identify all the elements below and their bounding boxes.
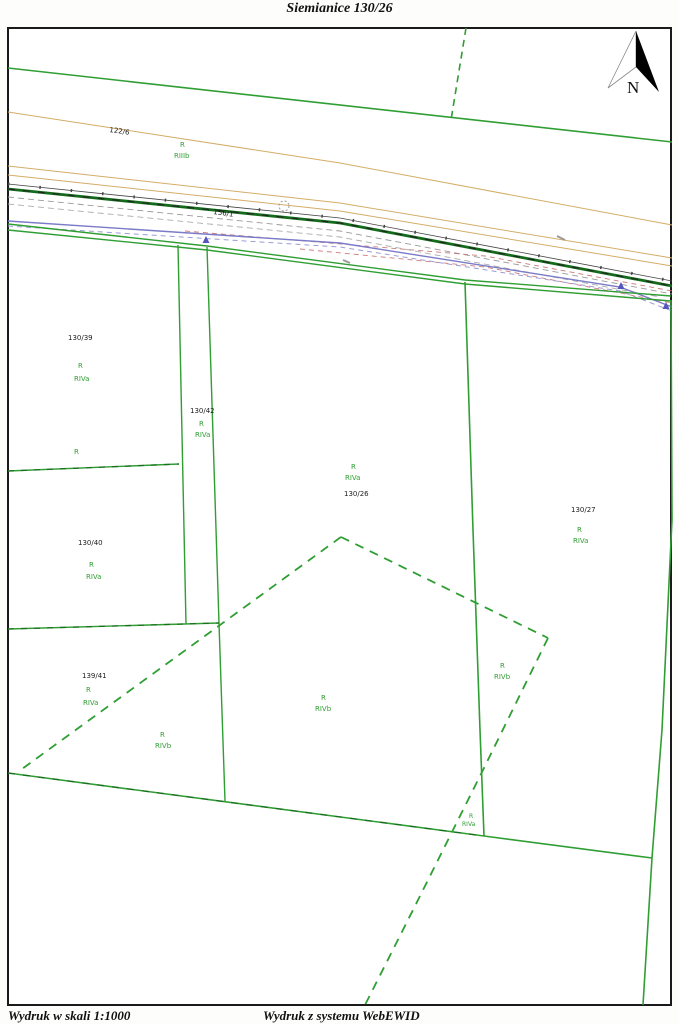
map-label: RIVa	[462, 821, 475, 829]
footer-system-note: Wydruk z systemu WebEWID	[263, 1008, 420, 1024]
map-label: R	[74, 448, 79, 456]
map-label: 122/6	[109, 126, 130, 137]
map-label: R	[577, 526, 582, 534]
map-label: R	[180, 141, 185, 149]
map-label: R	[86, 686, 91, 694]
map-label: RIVa	[86, 573, 101, 581]
north-arrow-letter: N	[627, 78, 639, 97]
map-label: R	[160, 731, 165, 739]
map-label: RIVa	[195, 431, 210, 439]
map-label: RIVa	[83, 699, 98, 707]
map-label: R	[199, 420, 204, 428]
map-label: 130/39	[68, 334, 93, 342]
map-label: 156/1	[213, 208, 234, 219]
map-label: R	[321, 694, 326, 702]
map-label: RIVb	[494, 673, 510, 681]
map-label: R	[351, 463, 356, 471]
map-label: R	[78, 362, 83, 370]
north-arrow-east-wing	[636, 31, 659, 92]
footer-scale-note: Wydruk w skali 1:1000	[8, 1008, 130, 1024]
map-label: R	[469, 813, 473, 821]
north-arrow-icon: N	[600, 25, 670, 100]
map-label: 130/40	[78, 539, 103, 547]
map-label: 139/41	[82, 672, 107, 680]
print-page: Siemianice 130/26 122/6RRIIIb156/1130/39…	[0, 0, 679, 1024]
map-label: R	[89, 561, 94, 569]
map-label: 130/42	[190, 407, 215, 415]
map-label: 130/26	[344, 490, 369, 498]
map-label: RIIIb	[174, 152, 190, 160]
map-label: 130/27	[571, 506, 596, 514]
map-label: RIVa	[345, 474, 360, 482]
map-label: RIVa	[74, 375, 89, 383]
map-label: R	[500, 662, 505, 670]
label-layer: 122/6RRIIIb156/1130/39RRIVa130/42RRIVaR1…	[0, 0, 679, 1024]
map-label: RIVb	[315, 705, 331, 713]
map-label: RIVb	[155, 742, 171, 750]
map-label: RIVa	[573, 537, 588, 545]
